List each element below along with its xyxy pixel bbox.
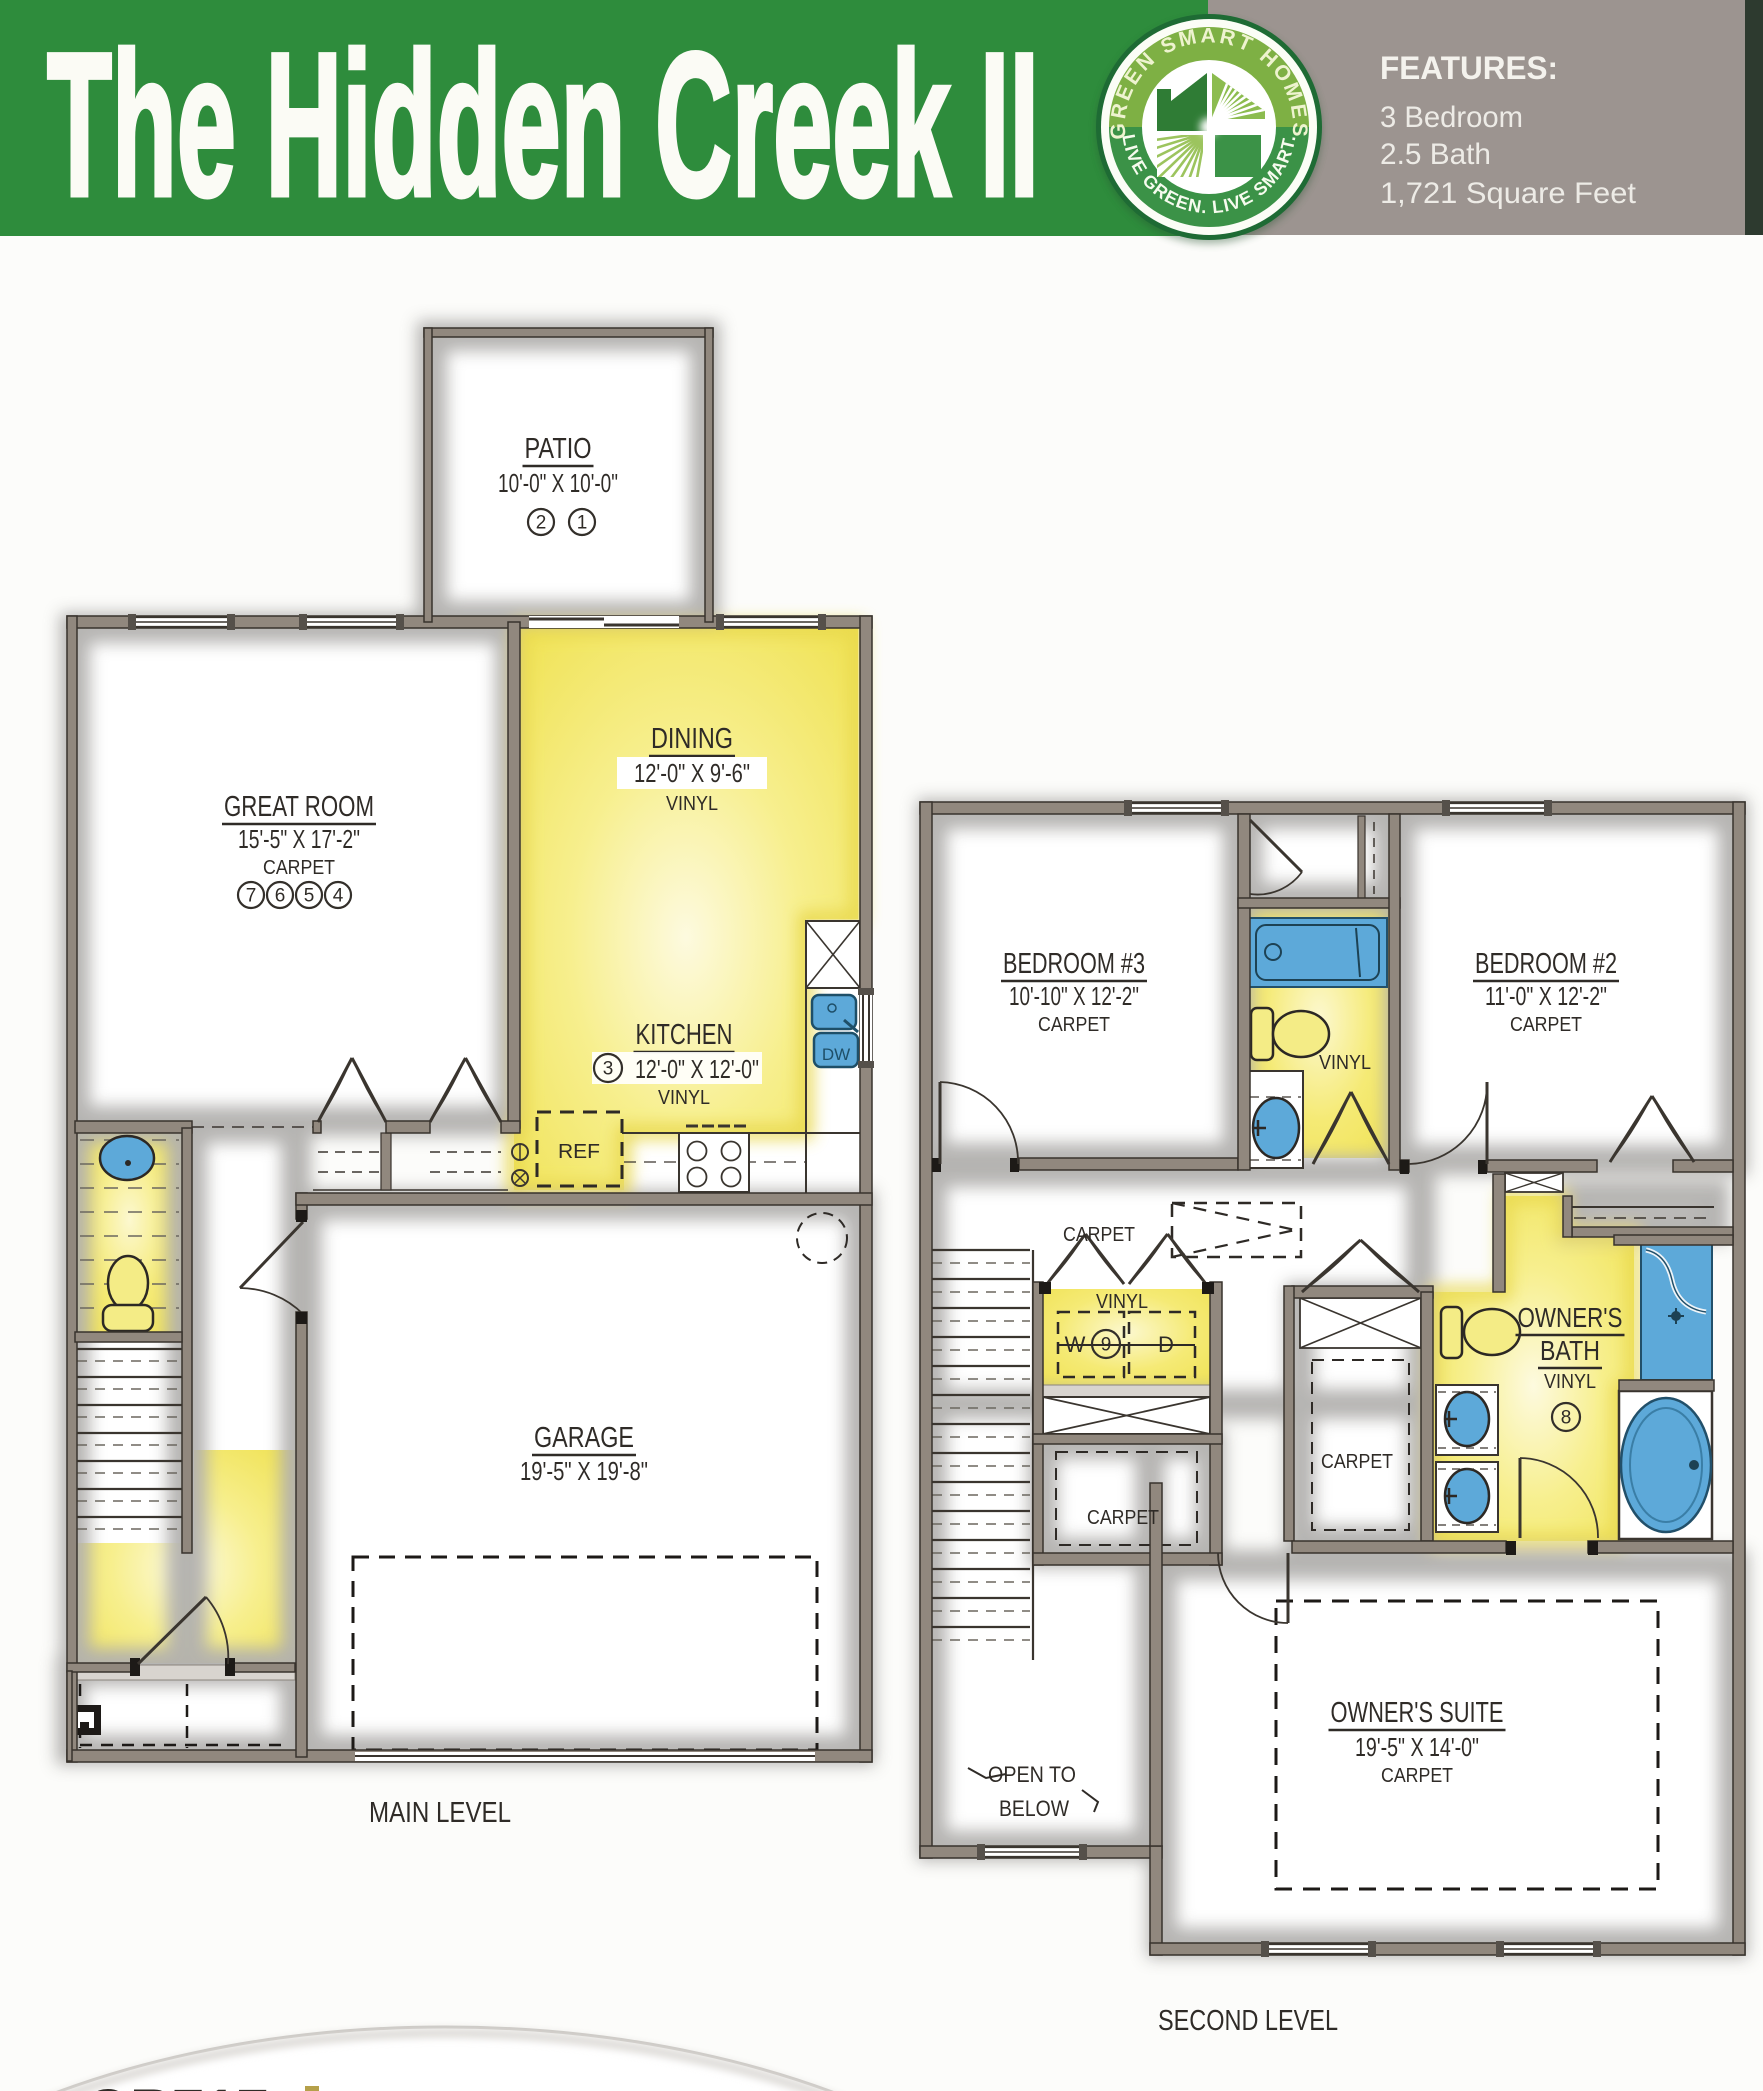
svg-text:VINYL: VINYL: [666, 793, 718, 815]
svg-text:REF: REF: [558, 1141, 600, 1163]
svg-text:8: 8: [1561, 1408, 1572, 1429]
svg-text:CARPET: CARPET: [1510, 1014, 1582, 1036]
svg-text:5: 5: [304, 886, 315, 907]
svg-text:VINYL: VINYL: [658, 1087, 710, 1109]
svg-text:CARPET: CARPET: [1038, 1014, 1110, 1036]
svg-text:10'-0" X 10'-0": 10'-0" X 10'-0": [498, 468, 618, 498]
svg-text:GARAGE: GARAGE: [534, 1422, 634, 1454]
svg-text:OPEN TO: OPEN TO: [988, 1762, 1076, 1787]
svg-text:1,721 Square Feet: 1,721 Square Feet: [1380, 177, 1637, 210]
svg-text:VINYL: VINYL: [1096, 1291, 1148, 1313]
svg-text:SECOND LEVEL: SECOND LEVEL: [1158, 2005, 1338, 2037]
svg-text:OWNER'S: OWNER'S: [1518, 1302, 1623, 1333]
svg-text:7: 7: [246, 886, 257, 907]
svg-text:BATH: BATH: [1540, 1335, 1600, 1366]
svg-text:D: D: [1158, 1332, 1174, 1357]
svg-text:FEATURES:: FEATURES:: [1380, 50, 1558, 86]
svg-text:KITCHEN: KITCHEN: [636, 1019, 733, 1051]
svg-text:GR717: GR717: [85, 2078, 269, 2091]
svg-text:DINING: DINING: [651, 723, 733, 755]
svg-text:4: 4: [333, 886, 344, 907]
svg-text:10'-10" X 12'-2": 10'-10" X 12'-2": [1009, 981, 1139, 1011]
svg-text:2: 2: [536, 513, 547, 534]
svg-text:MAIN LEVEL: MAIN LEVEL: [369, 1797, 511, 1829]
svg-text:BELOW: BELOW: [999, 1796, 1069, 1821]
svg-text:OWNER'S SUITE: OWNER'S SUITE: [1331, 1697, 1504, 1729]
svg-text:2.5 Bath: 2.5 Bath: [1380, 138, 1491, 171]
svg-text:CARPET: CARPET: [1087, 1507, 1159, 1529]
svg-text:CARPET: CARPET: [1063, 1224, 1135, 1246]
svg-text:3: 3: [603, 1059, 614, 1080]
svg-text:9: 9: [1101, 1335, 1112, 1356]
svg-text:BEDROOM #2: BEDROOM #2: [1475, 948, 1617, 980]
svg-text:1: 1: [577, 513, 588, 534]
svg-text:CARPET: CARPET: [263, 857, 335, 879]
svg-text:11'-0" X 12'-2": 11'-0" X 12'-2": [1485, 981, 1607, 1011]
svg-text:3 Bedroom: 3 Bedroom: [1380, 101, 1523, 134]
svg-text:DW: DW: [822, 1045, 850, 1064]
svg-text:BEDROOM #3: BEDROOM #3: [1003, 948, 1145, 980]
svg-text:W: W: [1065, 1332, 1086, 1357]
svg-text:VINYL: VINYL: [1319, 1052, 1371, 1074]
svg-text:VINYL: VINYL: [1544, 1371, 1596, 1393]
svg-text:GREAT ROOM: GREAT ROOM: [224, 791, 374, 823]
svg-text:CARPET: CARPET: [1321, 1451, 1393, 1473]
svg-text:19'-5" X 19'-8": 19'-5" X 19'-8": [520, 1456, 648, 1486]
svg-text:19'-5" X 14'-0": 19'-5" X 14'-0": [1355, 1732, 1479, 1762]
svg-text:PATIO: PATIO: [525, 433, 592, 465]
svg-text:CARPET: CARPET: [1381, 1765, 1453, 1787]
svg-text:12'-0" X 9'-6": 12'-0" X 9'-6": [634, 758, 750, 788]
svg-text:The Hidden Creek II: The Hidden Creek II: [47, 11, 1039, 239]
svg-text:6: 6: [275, 886, 286, 907]
svg-text:15'-5" X 17'-2": 15'-5" X 17'-2": [238, 824, 360, 854]
svg-text:12'-0" X 12'-0": 12'-0" X 12'-0": [635, 1054, 759, 1084]
